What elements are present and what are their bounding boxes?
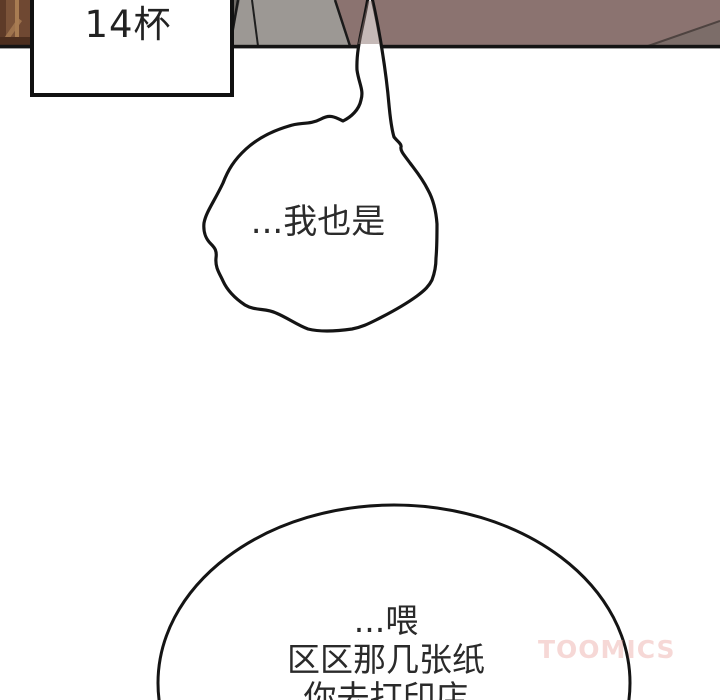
wood-shadow-band	[0, 37, 31, 46]
gray-wall-shape	[230, 0, 350, 46]
speech-bubble-2-text: ...喂 区区那几张纸 你去打印店	[236, 602, 536, 700]
comic-artwork	[0, 0, 720, 700]
speech-bubble-1-text: ...我也是	[210, 205, 426, 239]
speech-bubble-1-shape	[204, 0, 437, 331]
toomics-watermark: TOOMICS	[538, 635, 676, 664]
speech-bubble-2-line-1: ...喂	[236, 602, 536, 641]
mauve-wall-shape	[335, 0, 720, 46]
speech-bubble-2-line-3: 你去打印店	[236, 679, 536, 700]
wood-shelf-shape	[0, 0, 31, 46]
speech-bubble-2-line-2: 区区那几张纸	[236, 641, 536, 680]
caption-box-label: 14杯	[34, 6, 222, 43]
caption-box: 14杯	[30, 0, 234, 97]
comic-page: 14杯 ...我也是 ...喂 区区那几张纸 你去打印店 TOOMICS	[0, 0, 720, 700]
